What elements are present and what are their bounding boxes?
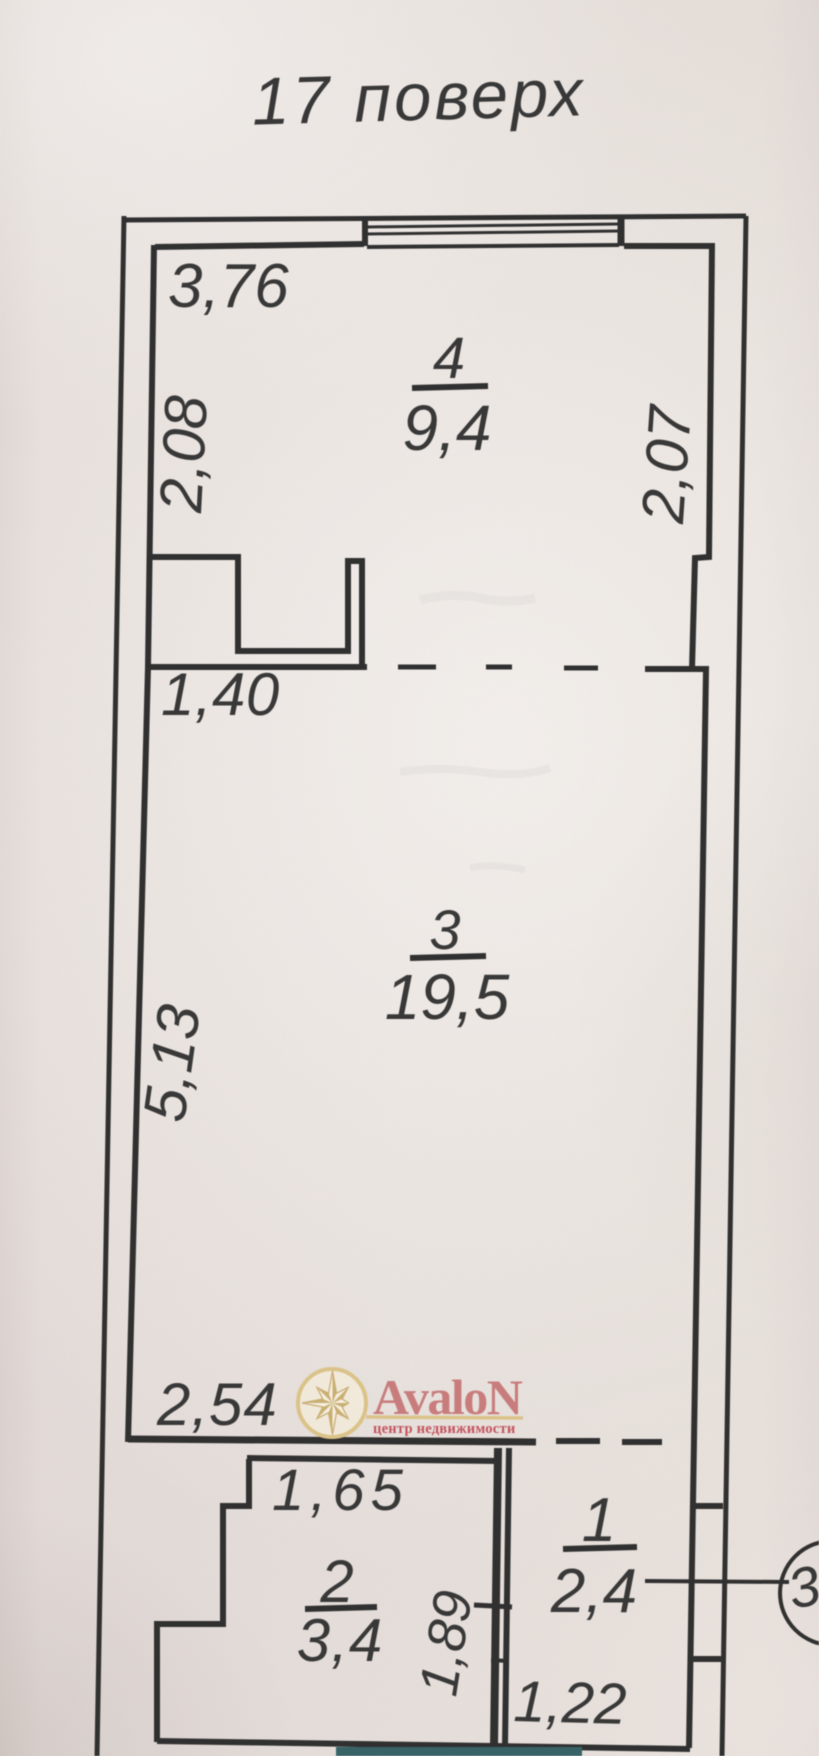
svg-text:3: 3	[782, 1553, 819, 1621]
svg-text:4: 4	[433, 326, 465, 391]
svg-text:1,65: 1,65	[272, 1458, 409, 1523]
svg-text:19,5: 19,5	[385, 961, 510, 1033]
svg-text:1,89: 1,89	[408, 1587, 484, 1700]
svg-text:17 поверх: 17 поверх	[251, 55, 587, 139]
svg-text:1: 1	[582, 1486, 616, 1555]
svg-text:2,54: 2,54	[156, 1371, 278, 1438]
svg-text:2,4: 2,4	[550, 1557, 637, 1626]
svg-text:1,40: 1,40	[161, 661, 280, 728]
svg-text:9,4: 9,4	[403, 392, 492, 464]
svg-text:3,76: 3,76	[168, 252, 289, 321]
svg-text:2,07: 2,07	[629, 401, 704, 526]
svg-text:5,13: 5,13	[130, 1001, 213, 1126]
svg-text:3: 3	[429, 898, 460, 961]
svg-text:2,08: 2,08	[147, 393, 220, 515]
svg-text:3,4: 3,4	[297, 1607, 383, 1674]
svg-text:центр недвижимости: центр недвижимости	[373, 1421, 516, 1437]
svg-text:1,22: 1,22	[513, 1669, 628, 1737]
